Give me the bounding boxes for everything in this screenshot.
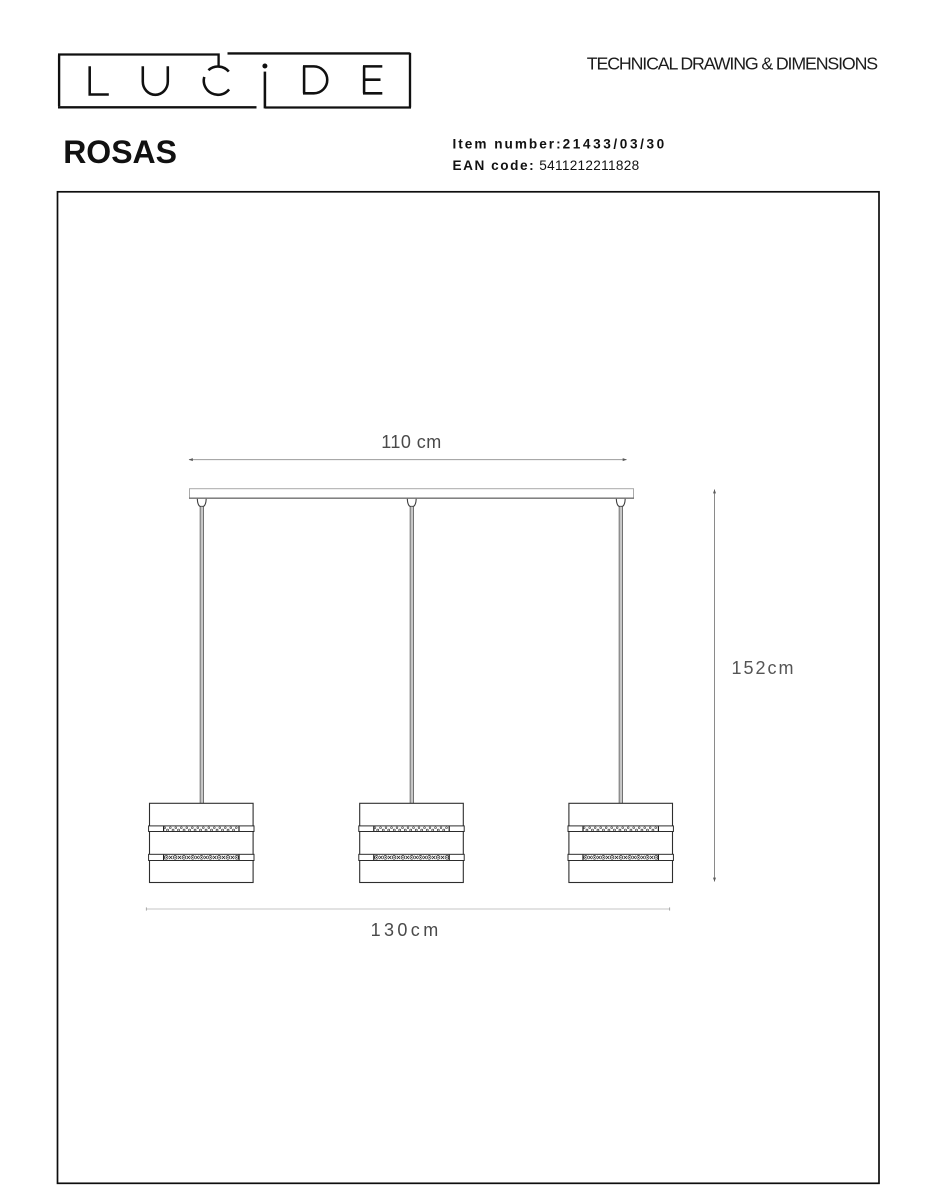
svg-text:130cm: 130cm	[371, 920, 442, 940]
svg-text:152cm: 152cm	[731, 658, 795, 678]
svg-text:110 cm: 110 cm	[381, 432, 441, 452]
svg-text:ROSAS: ROSAS	[63, 134, 177, 170]
svg-text:EAN code: 5411212211828: EAN code: 5411212211828	[453, 158, 640, 173]
svg-text:TECHNICAL DRAWING & DIMENSIONS: TECHNICAL DRAWING & DIMENSIONS	[587, 54, 878, 74]
svg-text:Item number:21433/03/30: Item number:21433/03/30	[453, 137, 667, 152]
